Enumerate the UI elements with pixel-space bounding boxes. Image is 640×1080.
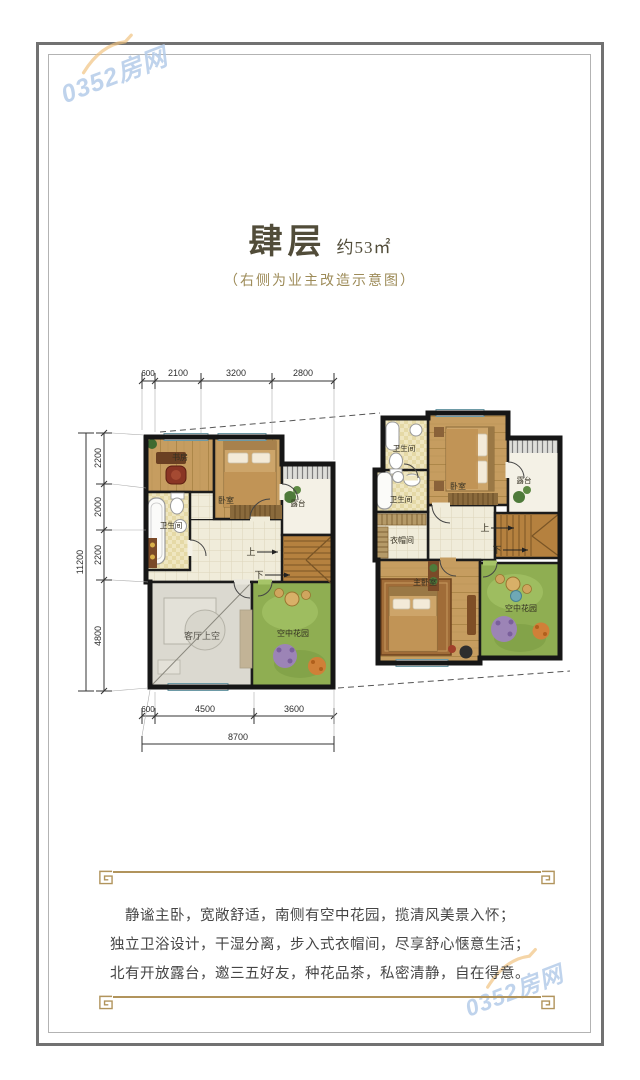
dim-top-2100: 2100 [168, 368, 188, 378]
label-terrace: 露台 [291, 498, 306, 508]
label-bedroom: 卧室 [218, 495, 234, 505]
terrace-railing [284, 466, 331, 479]
floor-plan-left: 书房 卧室 卫生间 露台 客厅上空 空中花园 上 下 [146, 434, 333, 691]
label-study: 书房 [172, 452, 188, 462]
dim-left-4800: 4800 [93, 626, 103, 646]
greek-key-icon [541, 869, 556, 885]
label-terrace: 露台 [517, 475, 532, 485]
toilet [390, 453, 403, 469]
description-line: 北有开放露台，邀三五好友，种花品茶，私密清静，自在得意。 [85, 960, 555, 989]
description: 静谧主卧，宽敞舒适，南侧有空中花园，揽清风美景入怀； 独立卫浴设计，干湿分离，步… [85, 902, 555, 989]
dim-bottom-600: 600 [141, 705, 155, 714]
description-line: 独立卫浴设计，干湿分离，步入式衣帽间，尽享舒心惬意生活； [85, 931, 555, 960]
flower-bush [273, 644, 297, 668]
decorative-rule-top [98, 869, 556, 885]
label-bathroom-top: 卫生间 [393, 443, 416, 453]
garden-table [285, 592, 299, 606]
label-master: 主卧室 [413, 577, 437, 587]
label-stairs-up: 上 [246, 547, 255, 557]
dim-top-3200: 3200 [226, 368, 246, 378]
dim-left-2200b: 2200 [93, 545, 103, 565]
rule-line [113, 996, 541, 998]
description-line: 静谧主卧，宽敞舒适，南侧有空中花园，揽清风美景入怀； [85, 902, 555, 931]
label-closet: 衣帽间 [390, 535, 414, 545]
bench [467, 595, 476, 635]
dim-left-2200a: 2200 [93, 448, 103, 468]
greek-key-icon [541, 994, 556, 1010]
garden-table [506, 577, 520, 591]
dim-bottom-total: 8700 [228, 732, 248, 742]
label-living-void: 客厅上空 [184, 630, 220, 641]
dim-top-2800: 2800 [293, 368, 313, 378]
decorative-rule-bottom [98, 994, 556, 1010]
label-bathroom-mid: 卫生间 [390, 494, 413, 504]
stairs-area [495, 513, 560, 558]
label-sky-garden: 空中花园 [277, 628, 309, 638]
label-stairs-up: 上 [480, 523, 489, 533]
dim-bottom-4500: 4500 [195, 704, 215, 714]
dim-left-total: 11200 [75, 550, 85, 574]
sink [393, 472, 404, 483]
dim-top-600: 600 [141, 369, 155, 378]
label-stairs-down: 下 [254, 570, 263, 580]
bedroom-furniture [224, 441, 282, 519]
rule-line [113, 871, 541, 873]
label-bathroom: 卫生间 [160, 520, 183, 530]
sink [410, 424, 422, 436]
label-sky-garden: 空中花园 [505, 603, 537, 613]
greek-key-icon [98, 994, 113, 1010]
flower-bush [491, 616, 517, 642]
pond [511, 591, 522, 602]
label-stairs-down: 下 [492, 545, 501, 555]
dim-left-2000: 2000 [93, 497, 103, 517]
dimensions-bottom: 600 4500 3600 8700 [139, 690, 337, 752]
page: { "colors": { "accent_gold": "#b1945c", … [0, 0, 640, 1080]
floor-plan-right: 卫生间 卧室 卫生间 露台 衣帽间 主卧室 空中花园 上 下 [375, 410, 560, 667]
hall-console [148, 538, 157, 568]
dimensions-left: 2200 2000 2200 4800 11200 [75, 430, 148, 694]
greek-key-icon [98, 869, 113, 885]
toilet [171, 498, 184, 514]
dim-bottom-3600: 3600 [284, 704, 304, 714]
label-bedroom: 卧室 [450, 481, 466, 491]
terrace-railing [510, 440, 558, 453]
